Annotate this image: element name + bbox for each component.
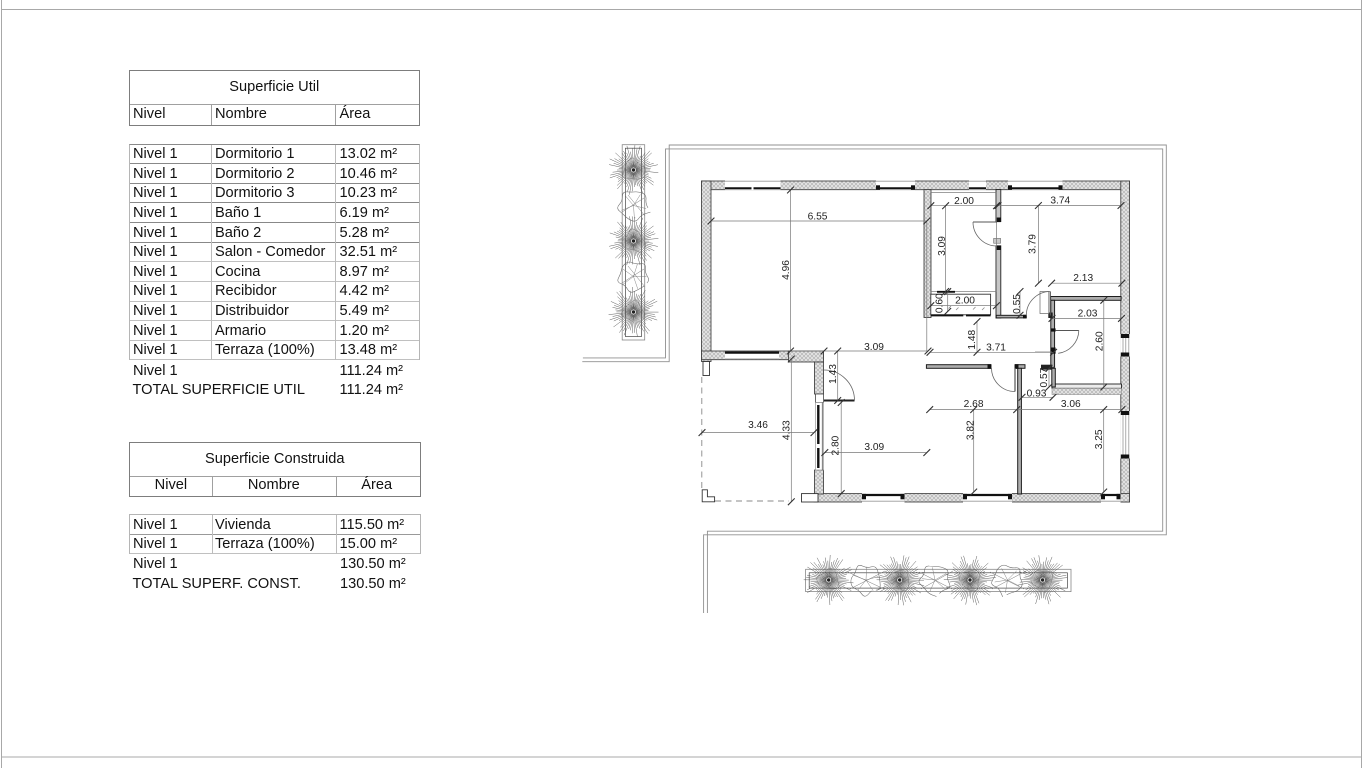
svg-text:3.71: 3.71 xyxy=(986,342,1006,353)
svg-text:2.68: 2.68 xyxy=(964,399,984,410)
svg-text:1.48: 1.48 xyxy=(967,329,978,349)
svg-text:3.82: 3.82 xyxy=(966,420,977,440)
svg-text:3.09: 3.09 xyxy=(937,236,948,256)
svg-text:2.60: 2.60 xyxy=(1094,331,1105,351)
svg-text:3.74: 3.74 xyxy=(1050,195,1070,206)
svg-text:2.03: 2.03 xyxy=(1078,309,1098,320)
svg-text:2.00: 2.00 xyxy=(954,196,974,207)
svg-text:0.57: 0.57 xyxy=(1039,367,1050,387)
svg-text:3.09: 3.09 xyxy=(864,442,884,453)
svg-text:2.00: 2.00 xyxy=(955,296,975,307)
svg-text:3.06: 3.06 xyxy=(1061,399,1081,410)
svg-text:3.09: 3.09 xyxy=(864,342,884,353)
svg-text:4.33: 4.33 xyxy=(781,420,792,440)
svg-text:3.25: 3.25 xyxy=(1094,429,1105,449)
svg-text:3.79: 3.79 xyxy=(1028,234,1039,254)
svg-text:3.46: 3.46 xyxy=(748,420,768,431)
svg-text:0.55: 0.55 xyxy=(1012,294,1023,314)
svg-text:4.96: 4.96 xyxy=(781,260,792,280)
svg-text:0.93: 0.93 xyxy=(1027,388,1047,399)
svg-text:6.55: 6.55 xyxy=(808,211,828,222)
svg-text:1.43: 1.43 xyxy=(828,364,839,384)
svg-text:2.13: 2.13 xyxy=(1073,273,1093,284)
svg-text:2.80: 2.80 xyxy=(831,435,842,455)
svg-text:0.60: 0.60 xyxy=(934,293,945,313)
